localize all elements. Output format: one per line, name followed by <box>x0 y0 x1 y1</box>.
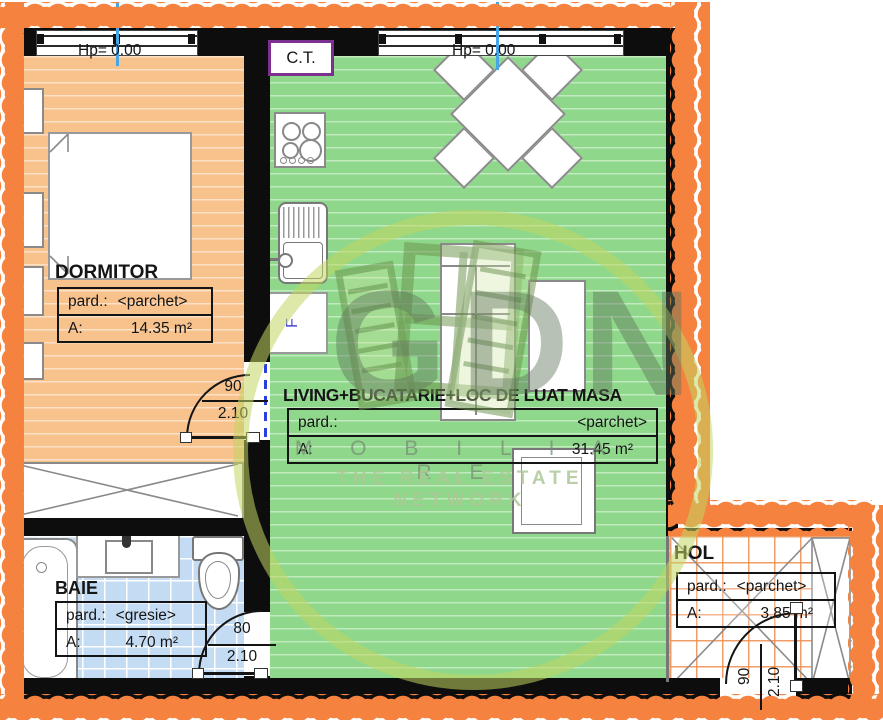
window-mullion <box>614 34 621 44</box>
dim-divider <box>208 644 276 646</box>
area-box-dormitor: pard.: <parchet> A: 14.35 m² <box>57 287 213 343</box>
area-label: A: <box>687 605 702 623</box>
area-label: A: <box>68 320 83 338</box>
pard-label: pard.: <box>66 607 106 625</box>
baie-door-leaf <box>198 672 262 675</box>
door-jamb <box>254 668 268 679</box>
insulation-left <box>0 2 24 708</box>
window-mullion <box>188 34 195 44</box>
baie-door-width: 80 <box>212 620 272 638</box>
area-box-baie: pard.: <gresie> A: 4.70 m² <box>55 601 207 657</box>
pard-label: pard.: <box>298 414 338 432</box>
area-label: A: <box>66 634 81 652</box>
pard-value: <parchet> <box>118 293 188 311</box>
door-jamb <box>192 668 204 679</box>
room-name-dormitor: DORMITOR <box>55 262 158 284</box>
wall-dormitor-living-upper <box>244 28 270 362</box>
area-box-row: A: 31.45 m² <box>289 437 656 462</box>
door-jamb <box>180 432 192 443</box>
area-box-row: pard.: <gresie> <box>57 603 205 630</box>
window-mullion <box>37 34 44 44</box>
area-value: 4.70 m² <box>125 634 196 652</box>
door-jamb <box>790 602 803 614</box>
insulation-hol-right <box>848 505 883 705</box>
pard-value: <parchet> <box>737 578 807 596</box>
area-value: 14.35 m² <box>131 320 202 338</box>
pard-label: pard.: <box>687 578 727 596</box>
insulation-right-living <box>670 2 710 522</box>
entrance-door-height: 2.10 <box>766 648 784 716</box>
room-name-hol: HOL <box>674 543 714 565</box>
boiler-box: C.T. <box>268 40 334 76</box>
area-box-row: A: 4.70 m² <box>57 630 205 655</box>
area-box-hol: pard.: <parchet> A: 3.85 m² <box>676 572 836 628</box>
area-box-row: A: 3.85 m² <box>678 601 834 626</box>
room-name-living: LIVING+BUCATARIE+LOC DE LUAT MASA <box>283 385 622 406</box>
wall-baie-living-upper <box>244 536 270 612</box>
window-mullion <box>539 34 546 44</box>
dormitor-door-leaf <box>186 436 250 439</box>
dim-divider <box>202 400 268 402</box>
pard-value: <gresie> <box>116 607 176 625</box>
dormitor-door-height: 2.10 <box>203 405 263 423</box>
insulation-top <box>0 2 694 28</box>
floor-plan-canvas: F <box>0 0 883 720</box>
door-jamb <box>790 680 803 692</box>
room-name-baie: BAIE <box>55 578 98 599</box>
door-jamb <box>246 432 260 443</box>
boiler-label: C.T. <box>286 49 315 68</box>
pard-value: <parchet> <box>577 414 647 432</box>
dormitor-door-width: 90 <box>203 378 263 396</box>
entrance-door-leaf <box>794 610 797 684</box>
area-box-row: A: 14.35 m² <box>59 316 211 341</box>
area-value: 31.45 m² <box>572 441 647 459</box>
area-label: A: <box>298 441 313 459</box>
area-box-row: pard.: <parchet> <box>59 289 211 316</box>
area-box-row: pard.: <parchet> <box>289 410 656 437</box>
hp-level-dormitor: Hp= 0.00 <box>78 42 141 60</box>
area-box-row: pard.: <parchet> <box>678 574 834 601</box>
window-mullion <box>379 34 386 44</box>
area-box-living: pard.: <parchet> A: 31.45 m² <box>287 408 658 464</box>
hp-level-living: Hp= 0.00 <box>452 42 515 60</box>
line-living-hol <box>666 536 669 682</box>
baie-door-height: 2.10 <box>212 648 272 666</box>
insulation-hol-top <box>668 500 872 536</box>
pard-label: pard.: <box>68 293 108 311</box>
wall-dormitor-baie <box>10 518 268 536</box>
entrance-door-width: 90 <box>736 648 754 704</box>
dim-divider <box>760 644 762 710</box>
